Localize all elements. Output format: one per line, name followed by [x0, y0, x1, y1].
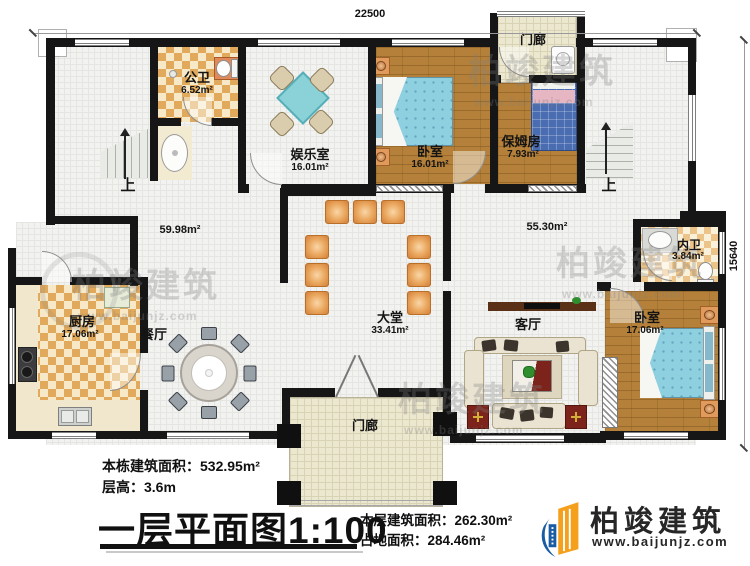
- window: [52, 432, 96, 439]
- wall: [150, 45, 158, 181]
- porch-edge: [497, 11, 585, 17]
- window-hatch: [528, 185, 577, 192]
- lobby-seat: [305, 291, 329, 315]
- hall-area-right: 55.30m²: [517, 221, 577, 233]
- company-logo-icon: [540, 497, 588, 566]
- lobby-seat: [305, 235, 329, 259]
- dimension-line-right: [744, 40, 745, 448]
- window: [719, 232, 725, 274]
- room-label-public-bath: 公卫: [172, 71, 222, 85]
- stairs-up-label-right: 上: [600, 178, 618, 195]
- window: [392, 39, 464, 46]
- lobby-seat: [325, 200, 349, 224]
- room-area-kitchen: 17.06m²: [51, 329, 109, 340]
- window: [593, 39, 657, 46]
- window: [167, 432, 249, 439]
- nightstand: [700, 306, 719, 324]
- blanket: [533, 90, 575, 103]
- dimension-top-width: 22500: [340, 8, 400, 20]
- stove-burner: [21, 366, 33, 378]
- stove-burner: [21, 351, 33, 363]
- sink-drain: [172, 150, 178, 156]
- wall: [368, 47, 376, 193]
- window-hatch: [376, 185, 443, 192]
- room-label-bedroom-top: 卧室: [405, 145, 455, 159]
- wall: [211, 118, 246, 126]
- sofa-cushion: [540, 407, 554, 419]
- wall: [46, 216, 138, 224]
- floor-area: 本层建筑面积：262.30m²: [360, 509, 512, 529]
- wall: [443, 190, 451, 281]
- sofa-cushion: [556, 340, 570, 352]
- porch-column: [433, 412, 457, 436]
- dimension-right-height: 15640: [728, 234, 740, 278]
- dining-chair: [201, 406, 217, 419]
- wall: [490, 75, 501, 83]
- plant: [572, 297, 581, 304]
- wall: [378, 388, 451, 397]
- pillow: [705, 332, 713, 360]
- sofa-cushion: [481, 339, 496, 352]
- window: [75, 39, 129, 46]
- stairs-right-arrow: [605, 128, 607, 174]
- wall: [644, 282, 726, 291]
- sofa-cushion: [499, 407, 515, 420]
- side-table: [467, 405, 489, 429]
- room-area-bedroom-top: 16.01m²: [400, 159, 460, 170]
- wall: [282, 388, 335, 397]
- floor-porch-bottom: [289, 397, 443, 507]
- room-area-lobby: 33.41m²: [362, 325, 418, 336]
- title-underline: [100, 544, 357, 549]
- wall: [46, 38, 55, 225]
- wardrobe: [602, 357, 618, 428]
- dining-chair: [201, 327, 217, 340]
- room-label-lobby: 大堂: [366, 311, 414, 325]
- company-logo: 柏竣建筑 www.baijunjz.com: [538, 494, 748, 564]
- room-area-entertainment: 16.01m²: [277, 162, 343, 173]
- room-label-living: 客厅: [504, 318, 552, 332]
- wall: [490, 13, 498, 193]
- toilet-icon: [698, 262, 713, 280]
- kitchen-counter-left: [16, 285, 38, 405]
- floor-height: 层高：3.6m: [102, 477, 176, 497]
- wall: [443, 397, 451, 412]
- sink-basin: [61, 410, 74, 423]
- company-website: www.baijunjz.com: [592, 534, 728, 549]
- lobby-seat: [353, 200, 377, 224]
- room-label-porch-bottom: 门廊: [339, 419, 391, 433]
- porch-column: [433, 481, 457, 505]
- window: [719, 328, 725, 400]
- title-underline-shadow: [106, 551, 363, 553]
- wall: [597, 282, 611, 291]
- room-area-public-bath: 6.52m²: [170, 85, 224, 96]
- window: [476, 435, 564, 442]
- plant: [523, 366, 535, 378]
- stairs-left-arrow: [124, 134, 126, 179]
- wall: [577, 13, 585, 193]
- lobby-seat: [305, 263, 329, 287]
- tv: [524, 303, 560, 309]
- sink-basin: [76, 410, 89, 423]
- room-label-bedroom-bottom: 卧室: [623, 311, 671, 325]
- dining-table-center: [205, 369, 213, 377]
- window: [9, 308, 15, 384]
- room-label-dining: 餐厅: [132, 328, 176, 342]
- stairs-left-arrowhead: [120, 128, 130, 136]
- room-label-entertainment: 娱乐室: [280, 148, 340, 162]
- toilet-tank: [231, 59, 238, 78]
- stairs-right-arrowhead: [601, 122, 611, 130]
- sink-icon: [648, 231, 672, 249]
- stairs-up-label-left: 上: [119, 178, 137, 195]
- hall-area-left: 59.98m²: [150, 224, 210, 236]
- nightstand: [700, 400, 719, 418]
- wall: [281, 184, 369, 193]
- wall: [633, 219, 641, 282]
- wall: [150, 118, 181, 126]
- wall: [140, 390, 148, 439]
- side-table: [565, 405, 587, 429]
- washer-drum: [556, 52, 570, 66]
- dimension-line-top: [33, 33, 697, 34]
- room-label-kitchen: 厨房: [58, 315, 106, 329]
- porch-column: [277, 424, 301, 448]
- dining-chair: [162, 366, 175, 382]
- sofa-left: [464, 350, 484, 408]
- wall: [130, 216, 138, 286]
- sofa-cushion: [519, 409, 534, 422]
- sofa-cushion: [503, 339, 518, 351]
- pillow: [705, 364, 713, 392]
- wall: [443, 291, 451, 398]
- footprint-area: 占地面积：284.46m²: [360, 529, 485, 549]
- lobby-seat: [407, 235, 431, 259]
- floor-plan-page: { "dimensions": { "top_width": "22500", …: [0, 0, 750, 566]
- wall: [633, 219, 726, 227]
- room-label-porch-top: 门廊: [508, 33, 558, 47]
- window: [258, 39, 340, 46]
- room-area-bedroom-bottom: 17.06m²: [615, 325, 675, 336]
- dining-chair: [244, 366, 257, 382]
- lobby-seat: [407, 263, 431, 287]
- lobby-seat: [381, 200, 405, 224]
- wall: [280, 188, 288, 283]
- building-total-area: 本栋建筑面积：532.95m²: [102, 456, 260, 476]
- sofa-right: [578, 350, 598, 406]
- window: [624, 432, 688, 439]
- room-area-nanny: 7.93m²: [496, 149, 550, 160]
- room-area-master-bath: 3.84m²: [666, 251, 710, 262]
- room-label-nanny: 保姆房: [493, 135, 549, 149]
- window: [688, 95, 696, 161]
